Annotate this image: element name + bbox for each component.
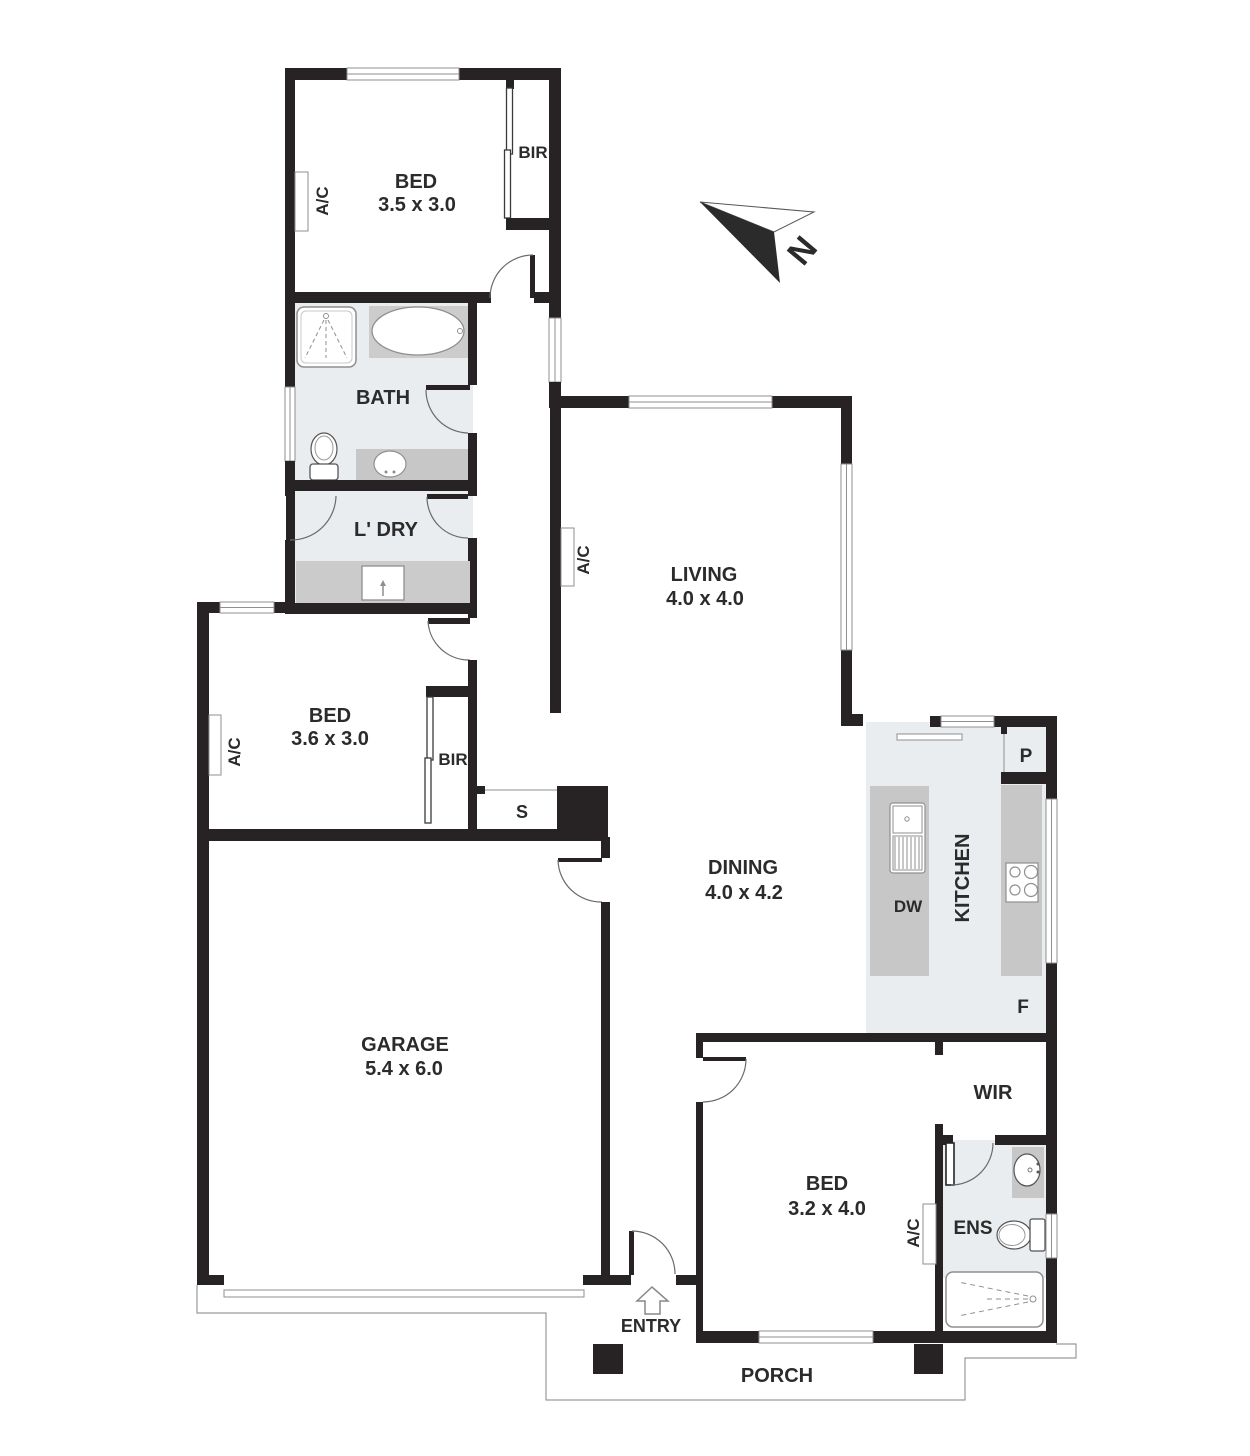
svg-text:BIR: BIR — [438, 750, 467, 769]
svg-text:BED: BED — [309, 705, 351, 727]
svg-text:PORCH: PORCH — [741, 1365, 813, 1387]
svg-text:L' DRY: L' DRY — [354, 519, 419, 541]
svg-text:GARAGE: GARAGE — [361, 1034, 449, 1056]
svg-text:LIVING: LIVING — [671, 564, 738, 586]
svg-text:DINING: DINING — [708, 857, 778, 879]
svg-text:4.0 x 4.0: 4.0 x 4.0 — [666, 588, 744, 610]
svg-text:S: S — [516, 802, 528, 822]
svg-text:ENTRY: ENTRY — [621, 1316, 681, 1336]
svg-text:A/C: A/C — [904, 1218, 923, 1247]
svg-text:P: P — [1020, 746, 1033, 767]
svg-text:A/C: A/C — [225, 737, 244, 766]
svg-text:A/C: A/C — [574, 545, 593, 574]
svg-text:BATH: BATH — [356, 387, 410, 409]
svg-text:3.6 x 3.0: 3.6 x 3.0 — [291, 728, 369, 750]
svg-text:BED: BED — [395, 171, 437, 193]
svg-text:WIR: WIR — [974, 1082, 1013, 1104]
svg-text:BED: BED — [806, 1173, 848, 1195]
svg-text:ENS: ENS — [953, 1218, 992, 1239]
svg-text:3.2 x 4.0: 3.2 x 4.0 — [788, 1198, 866, 1220]
svg-text:KITCHEN: KITCHEN — [952, 834, 974, 923]
svg-text:5.4 x 6.0: 5.4 x 6.0 — [365, 1058, 443, 1080]
svg-text:DW: DW — [894, 897, 923, 916]
svg-text:A/C: A/C — [313, 186, 332, 215]
svg-text:BIR: BIR — [518, 143, 547, 162]
svg-text:4.0 x 4.2: 4.0 x 4.2 — [705, 882, 783, 904]
svg-text:3.5 x 3.0: 3.5 x 3.0 — [378, 194, 456, 216]
svg-text:F: F — [1017, 997, 1029, 1018]
